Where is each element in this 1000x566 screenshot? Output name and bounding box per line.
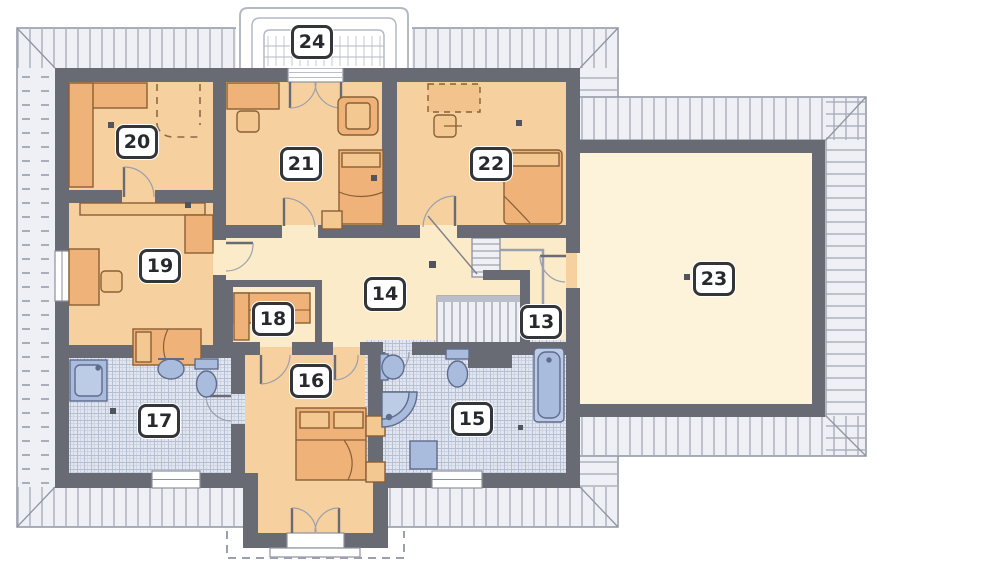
room-label-21: 21	[280, 147, 322, 181]
window-bath17-south	[152, 471, 200, 488]
balcony-door-threshold	[288, 68, 343, 82]
room-label-19: 19	[139, 249, 181, 283]
sink-17	[158, 359, 184, 379]
floor-plan-page: 13 14 15 16 17 18 19 20 21 22 23 24	[0, 0, 1000, 566]
toilet-17	[195, 359, 218, 369]
room-label-16: 16	[290, 364, 332, 398]
toilet-15	[446, 349, 469, 359]
room-label-20: 20	[116, 125, 158, 159]
window-bath15-south	[432, 471, 482, 488]
room-label-14: 14	[364, 277, 406, 311]
sink-15	[382, 355, 404, 379]
room-label-24: 24	[291, 25, 333, 59]
room-label-15: 15	[451, 402, 493, 436]
washer-15	[410, 441, 437, 469]
window-room19-west	[55, 251, 69, 301]
room-label-13: 13	[520, 305, 562, 339]
room-label-18: 18	[252, 302, 294, 336]
room-label-22: 22	[470, 147, 512, 181]
floor-plan-canvas	[0, 0, 1000, 566]
room-label-23: 23	[693, 262, 735, 296]
room-label-17: 17	[138, 404, 180, 438]
